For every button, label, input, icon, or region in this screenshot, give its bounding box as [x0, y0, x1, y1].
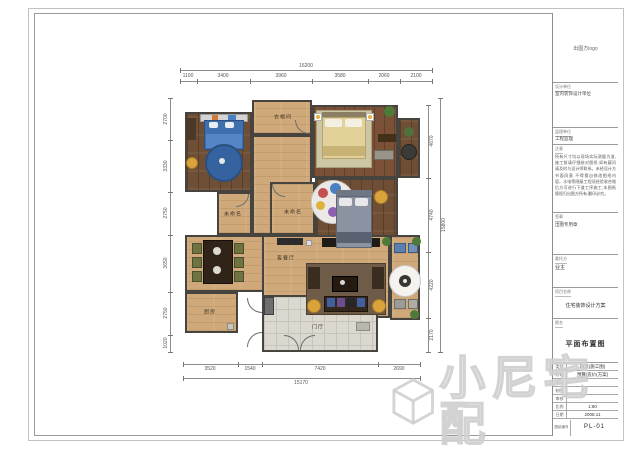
row-label: 类别 [553, 363, 567, 370]
row-value [567, 387, 618, 394]
kitchen-fixture [227, 323, 234, 330]
row-value: 1:80 [567, 403, 618, 410]
row-value [567, 395, 618, 402]
balcony-chair-blue [394, 243, 406, 253]
dining-chair [234, 243, 244, 254]
dining-plate [213, 266, 221, 274]
balcony-plant [412, 237, 421, 246]
dim-top-total: 16200 [299, 63, 313, 69]
row-value [567, 379, 618, 386]
tb-row-checker: 审核 [553, 395, 618, 403]
supervisor-cell: 监理单位 工程监理 [553, 128, 618, 145]
notes-cell: 注意 所有尺寸均以现场实际测量为准,施工前请仔细核对图纸,如有疑问请及时与设计师… [553, 145, 618, 213]
coffee-table [332, 276, 358, 292]
row-value: 内装(施工图) [567, 363, 618, 370]
kids-desk [186, 118, 196, 140]
kids-pouf-yellow [186, 157, 198, 169]
tb-row-stage: 阶段 预算/造价(方案) [553, 371, 618, 379]
balcony-table-item [403, 279, 407, 283]
dim-left-seg: 3330 [163, 160, 169, 171]
dim-left-seg: 1020 [163, 337, 169, 348]
dining-chair [234, 271, 244, 282]
owner-value: 业主 [555, 264, 565, 271]
row-label: 制图 [553, 387, 567, 394]
drawing-sheet: 衣帽间 未命名 未命名 客餐厅 厨房 门厅 16200 1100 3400 39… [0, 0, 640, 452]
label-cloakroom: 衣帽间 [274, 114, 292, 121]
master-pillow [345, 119, 362, 127]
dim-left-seg: 2750 [163, 307, 169, 318]
bedroom2-pouf-yellow [374, 190, 388, 204]
design-unit-cell: 设计单位 室内装饰设计单位 [553, 83, 618, 128]
row-value: 预算/造价(方案) [567, 371, 618, 378]
entry-mat [356, 322, 370, 331]
drawing-number: PL-01 [571, 420, 618, 436]
floor-plan: 衣帽间 未命名 未命名 客餐厅 厨房 门厅 16200 1100 3400 39… [0, 0, 640, 452]
dining-chair [192, 257, 202, 268]
owner-cell: 委托方 业主 [553, 255, 618, 288]
label-kitchen: 厨房 [204, 309, 216, 316]
tb-row-scale: 比例 1:80 [553, 403, 618, 411]
dim-right-seg: 4740 [429, 209, 435, 220]
project-header: 项目名称 [555, 289, 571, 297]
niche-chair [401, 144, 417, 160]
dim-top-seg: 3960 [275, 73, 286, 79]
bedroom2-pillow [339, 198, 352, 206]
row-label: 阶段 [553, 371, 567, 378]
master-plant [384, 106, 395, 117]
entry-cabinet [264, 297, 274, 315]
dim-right-seg: 4670 [429, 135, 435, 146]
balcony-chair-gray [394, 299, 406, 309]
rug-dot-red [318, 188, 328, 198]
rug-dot-yellow [316, 201, 325, 210]
door-arc [247, 332, 262, 347]
label-living-dining: 客餐厅 [277, 255, 295, 262]
design-unit-value: 室内装饰设计单位 [555, 91, 591, 97]
label-room-b: 未命名 [284, 209, 302, 216]
project-cell: 项目名称 住宅装饰设计方案 [553, 288, 618, 319]
master-lamp [368, 115, 372, 119]
kids-rug-toy [219, 158, 225, 164]
seal-cell: 签章 出图专用章 [553, 213, 618, 255]
side-chaise-right [372, 267, 384, 289]
dim-top-chain-line [180, 81, 432, 82]
armchair-yellow [307, 299, 321, 313]
dining-plate [213, 247, 221, 255]
row-label: 日期 [553, 411, 567, 418]
bedroom2-pillow [355, 198, 368, 206]
dim-left-seg: 3650 [163, 257, 169, 268]
balcony-plant [410, 310, 419, 319]
dim-bottom-seg: 3520 [204, 366, 215, 372]
row-value: 2008.11 [567, 411, 618, 418]
drawing-number-label: 图纸编号 [553, 420, 571, 436]
notes-text: 所有尺寸均以现场实际测量为准,施工前请仔细核对图纸,如有疑问请及时与设计师联系。… [555, 154, 616, 197]
tb-row-category: 类别 内装(施工图) [553, 363, 618, 371]
master-lamp [316, 115, 320, 119]
master-throw [323, 146, 365, 156]
sofa-cushion-blue [357, 298, 365, 307]
dining-chair [192, 271, 202, 282]
sofa-cushion-purple [337, 298, 345, 307]
seal-value: 出图专用章 [555, 222, 578, 228]
dim-top-seg: 2060 [378, 73, 389, 79]
dim-left-chain-line [170, 98, 171, 352]
title-block: 出图方logo 设计单位 室内装饰设计单位 监理单位 工程监理 注意 所有尺寸均… [552, 13, 618, 436]
side-chaise-left [308, 267, 320, 289]
drawing-name-header: 图名 [555, 320, 563, 328]
drawing-name-cell: 图名 平面布置图 [553, 319, 618, 363]
dim-right-seg: 4220 [429, 279, 435, 290]
dim-top-seg: 1100 [183, 73, 194, 79]
dim-top-total-line [180, 70, 432, 71]
sofa-cushion-blue [327, 298, 335, 307]
bedroom2-throw [337, 232, 371, 243]
master-pillow [325, 119, 342, 127]
speaker-box [306, 240, 312, 246]
kids-bed-pillow [225, 122, 234, 128]
row-label: 设计 [553, 379, 567, 386]
dim-bottom-total: 15170 [294, 380, 308, 386]
dim-left-seg: 2700 [163, 113, 169, 124]
kids-bed-pillow [209, 122, 218, 128]
dim-top-seg: 3400 [217, 73, 228, 79]
dim-right-seg: 2170 [429, 329, 435, 340]
tb-row-date: 日期 2008.11 [553, 411, 618, 419]
dim-bottom-seg: 7420 [314, 366, 325, 372]
dining-chair [234, 257, 244, 268]
balcony-chair-gray [408, 299, 418, 309]
supervisor-value: 工程监理 [555, 136, 573, 142]
armchair-yellow [372, 299, 386, 313]
tb-row-designer: 设计 [553, 379, 618, 387]
dim-top-seg: 3580 [334, 73, 345, 79]
tv-console-small [277, 238, 303, 245]
dim-bottom-seg: 2690 [393, 366, 404, 372]
door-arc [247, 298, 262, 313]
sofa-cushion-dark [347, 298, 355, 307]
dim-bottom-total-line [183, 378, 420, 379]
drawing-name: 平面布置图 [553, 339, 618, 349]
notes-header: 注意 [555, 146, 563, 154]
dim-top-seg: 2100 [410, 73, 421, 79]
drawing-number-cell: 图纸编号 PL-01 [553, 420, 618, 436]
label-entry: 门厅 [312, 324, 324, 331]
row-label: 比例 [553, 403, 567, 410]
niche-plant [404, 127, 414, 137]
master-dresser [378, 134, 396, 142]
seal-header: 签章 [555, 214, 563, 222]
title-block-rows: 类别 内装(施工图) 阶段 预算/造价(方案) 设计 制图 审核 比例 1:8 [553, 363, 618, 420]
label-room-a: 未命名 [224, 211, 242, 218]
living-plant [382, 237, 391, 246]
issuer-logo-text: 出图方logo [553, 45, 618, 52]
row-label: 审核 [553, 395, 567, 402]
dim-right-total: 15800 [441, 218, 447, 232]
project-name: 住宅装饰设计方案 [553, 302, 618, 309]
owner-header: 委托方 [555, 256, 567, 264]
master-bench [374, 150, 394, 160]
title-block-logo-cell: 出图方logo [553, 13, 618, 83]
dining-chair [192, 243, 202, 254]
coffee-table-item [340, 280, 345, 285]
dim-bottom-seg: 1540 [244, 366, 255, 372]
dim-bottom-chain-line [183, 364, 420, 365]
dim-left-seg: 2750 [163, 207, 169, 218]
tb-row-drafter: 制图 [553, 387, 618, 395]
